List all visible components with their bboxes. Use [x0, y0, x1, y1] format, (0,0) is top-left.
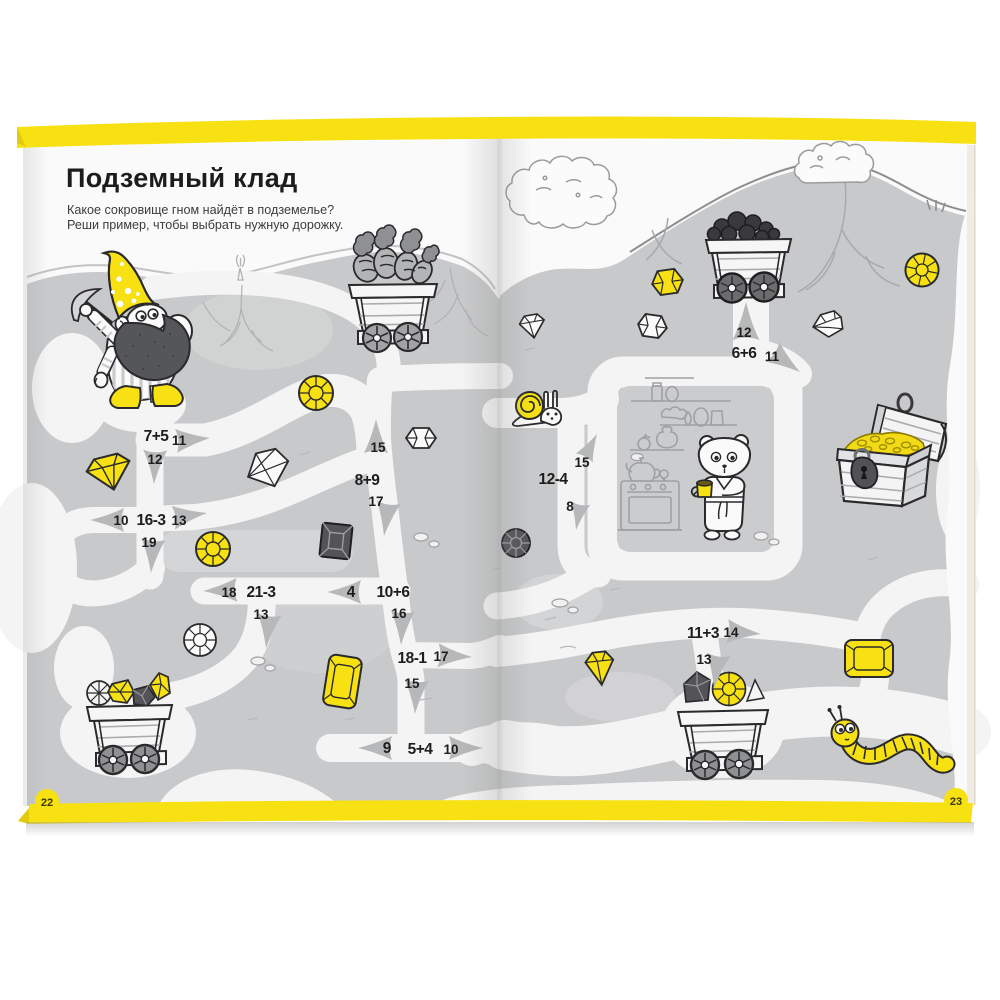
- svg-text:16: 16: [391, 606, 407, 621]
- svg-text:15: 15: [370, 440, 386, 455]
- svg-text:15: 15: [574, 455, 590, 470]
- svg-text:10+6: 10+6: [377, 584, 411, 601]
- svg-text:Подземный клад: Подземный клад: [66, 163, 298, 193]
- svg-text:8: 8: [566, 499, 574, 514]
- svg-text:13: 13: [171, 513, 187, 528]
- svg-text:13: 13: [253, 607, 269, 622]
- svg-text:17: 17: [368, 494, 383, 509]
- svg-text:9: 9: [383, 740, 392, 757]
- svg-text:5+4: 5+4: [408, 741, 434, 758]
- svg-text:21-3: 21-3: [246, 584, 276, 601]
- svg-text:6+6: 6+6: [732, 345, 758, 362]
- svg-text:11: 11: [765, 349, 780, 364]
- svg-text:23: 23: [950, 796, 962, 808]
- svg-text:12: 12: [736, 325, 751, 340]
- svg-text:11+3: 11+3: [687, 625, 720, 642]
- svg-text:Какое сокровище гном найдёт в: Какое сокровище гном найдёт в подземелье…: [67, 203, 334, 217]
- svg-text:16-3: 16-3: [136, 512, 166, 529]
- svg-text:14: 14: [723, 625, 739, 640]
- svg-text:7+5: 7+5: [144, 428, 170, 445]
- svg-text:18-1: 18-1: [397, 650, 427, 667]
- svg-text:12: 12: [147, 452, 162, 467]
- svg-text:22: 22: [41, 797, 53, 809]
- svg-text:19: 19: [141, 535, 156, 550]
- svg-text:10: 10: [443, 742, 458, 757]
- svg-text:11: 11: [172, 433, 187, 448]
- svg-text:Реши пример, чтобы выбрать нуж: Реши пример, чтобы выбрать нужную дорожк…: [67, 218, 343, 232]
- svg-text:10: 10: [113, 513, 128, 528]
- svg-text:4: 4: [347, 584, 356, 601]
- svg-text:8+9: 8+9: [355, 472, 381, 489]
- svg-text:13: 13: [696, 652, 712, 667]
- svg-text:18: 18: [221, 585, 237, 600]
- svg-text:17: 17: [433, 649, 448, 664]
- svg-text:12-4: 12-4: [538, 471, 568, 488]
- svg-text:15: 15: [404, 676, 420, 691]
